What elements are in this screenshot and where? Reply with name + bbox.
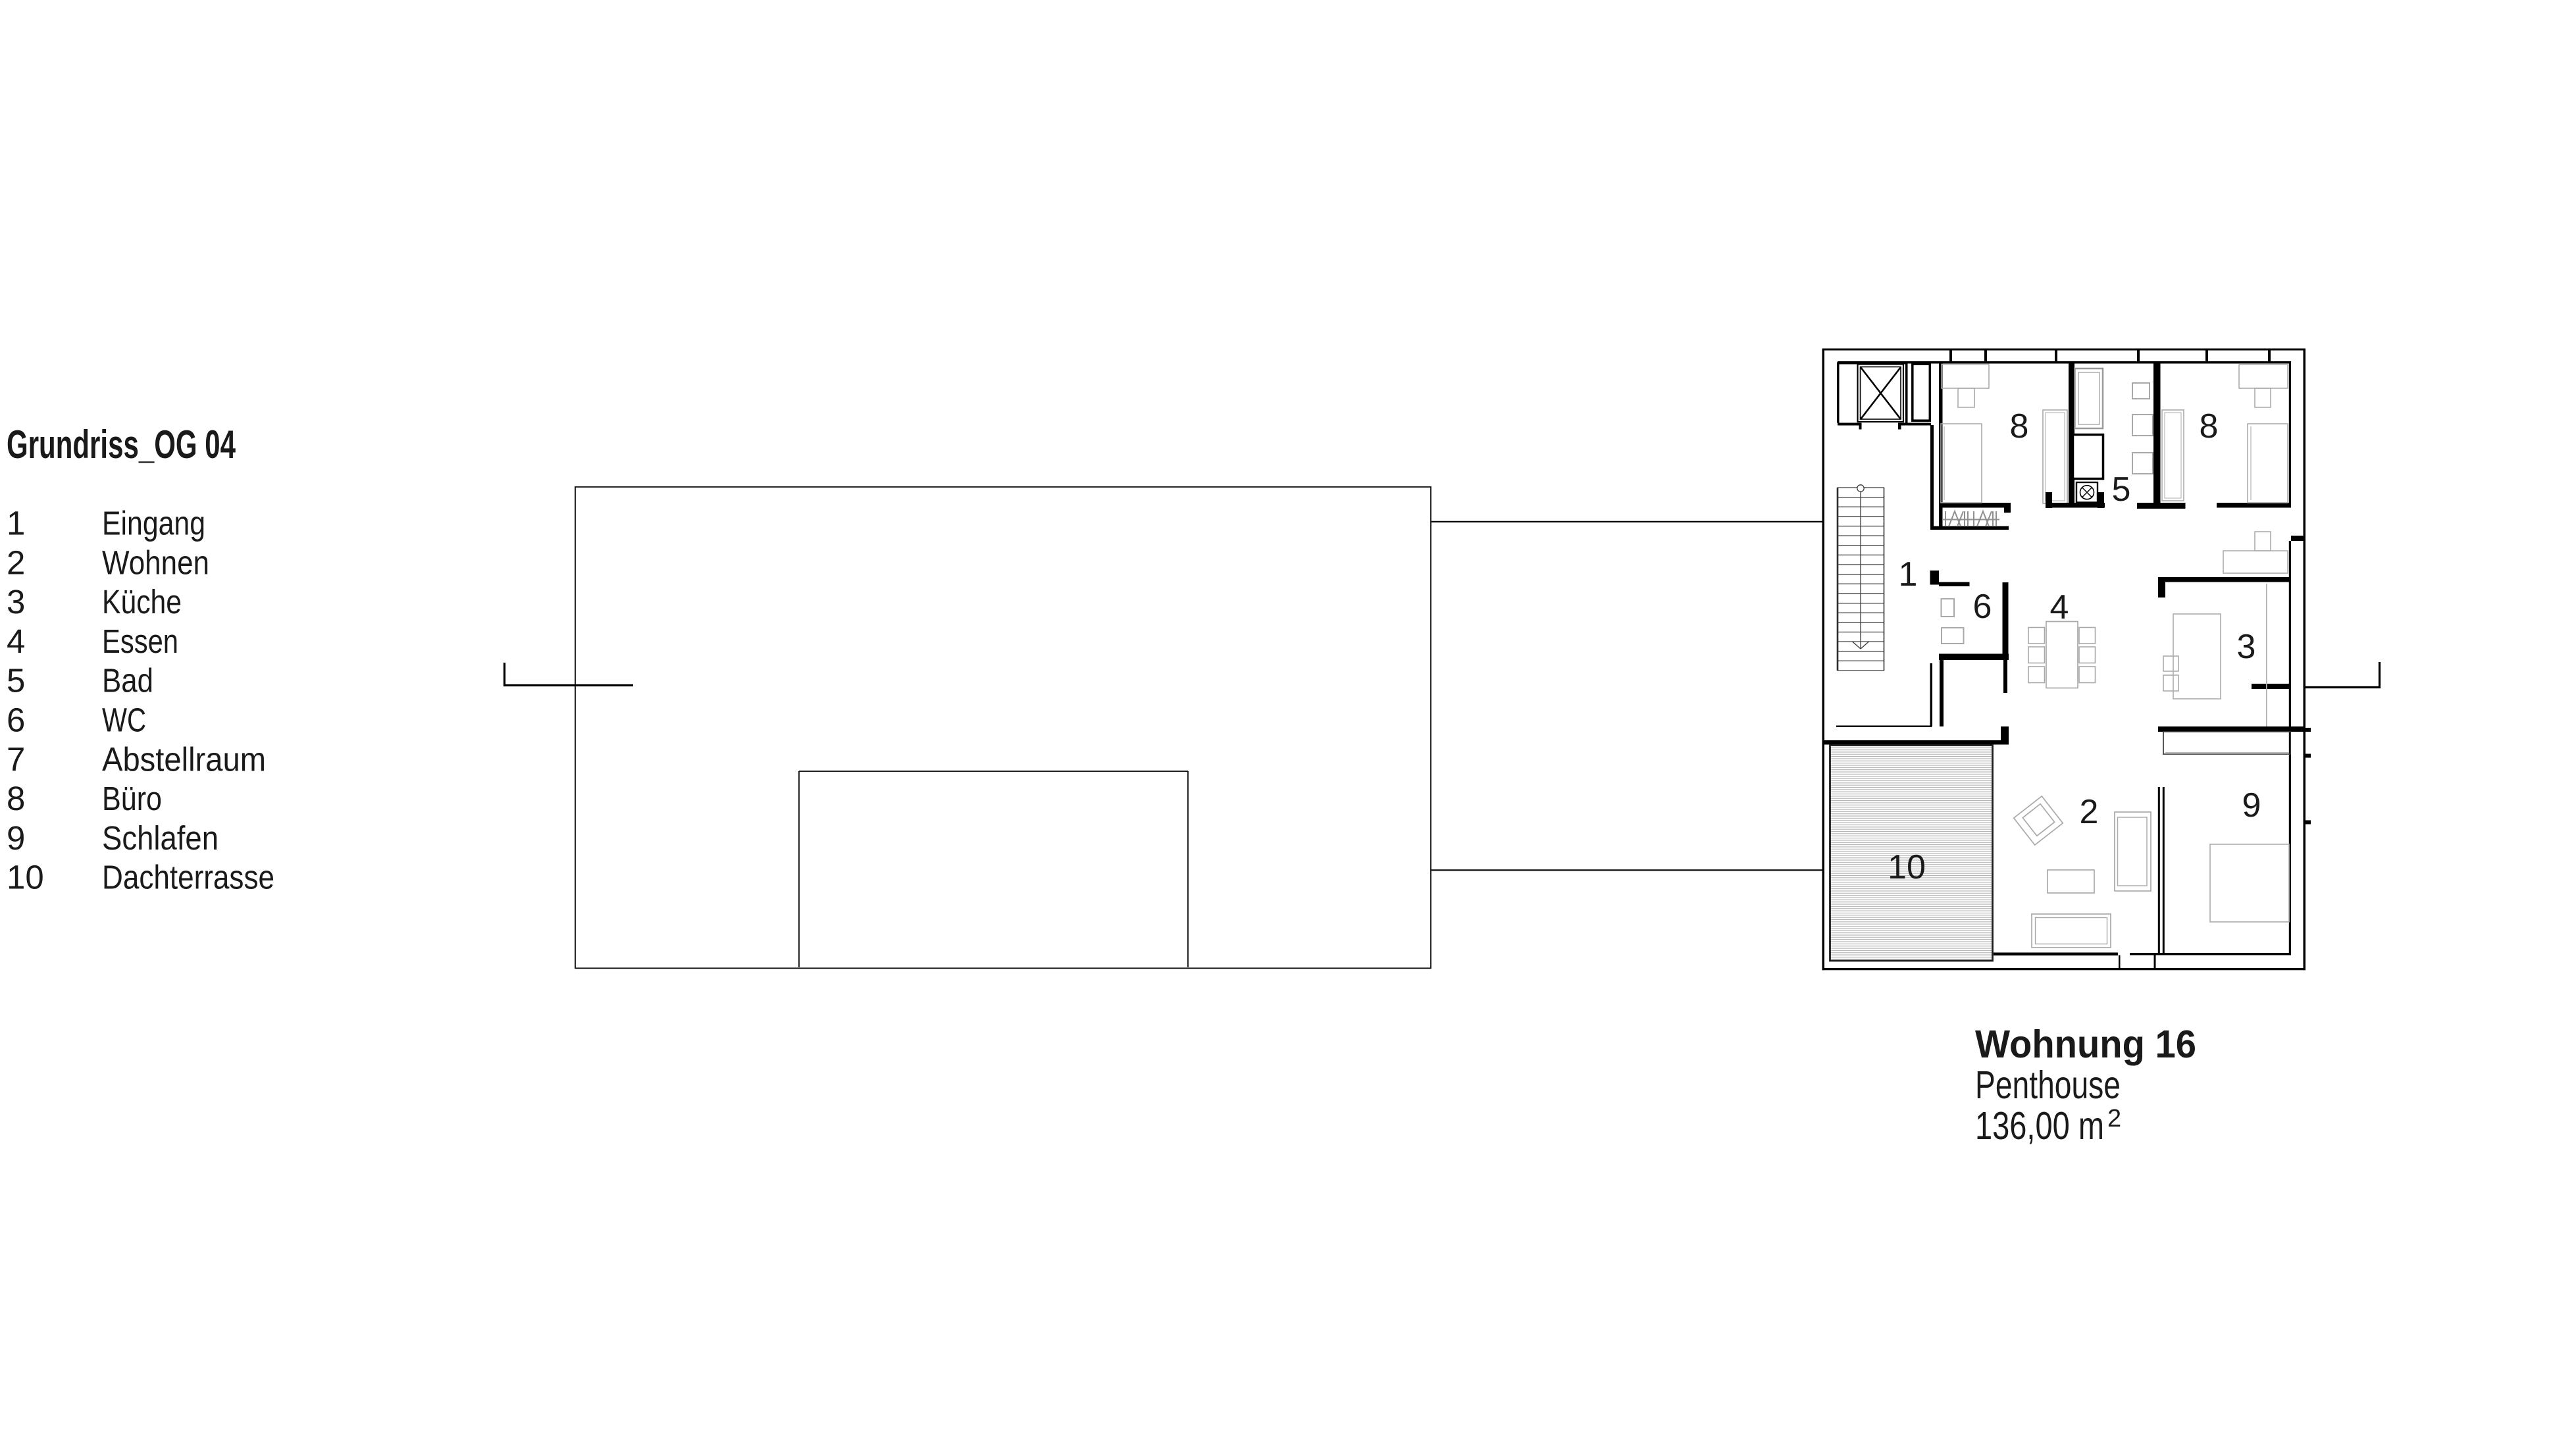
svg-text:9: 9 xyxy=(2242,786,2261,825)
svg-text:Wohnung 16: Wohnung 16 xyxy=(1975,1023,2196,1066)
svg-text:10: 10 xyxy=(1888,848,1926,886)
svg-text:2: 2 xyxy=(2107,1105,2121,1132)
svg-text:5: 5 xyxy=(2112,470,2131,509)
svg-text:8: 8 xyxy=(2010,407,2029,445)
svg-text:6: 6 xyxy=(1973,588,1992,626)
svg-text:1: 1 xyxy=(1899,555,1918,594)
svg-text:10: 10 xyxy=(7,859,44,896)
svg-text:7: 7 xyxy=(7,740,25,778)
svg-text:8: 8 xyxy=(2200,407,2219,445)
svg-text:4: 4 xyxy=(7,623,25,660)
svg-text:Dachterrasse: Dachterrasse xyxy=(102,859,274,896)
svg-text:3: 3 xyxy=(7,583,25,621)
svg-text:Küche: Küche xyxy=(102,583,182,621)
svg-text:Essen: Essen xyxy=(102,623,178,660)
svg-text:2: 2 xyxy=(7,544,25,581)
svg-text:WC: WC xyxy=(102,701,146,739)
svg-text:Penthouse: Penthouse xyxy=(1975,1063,2121,1107)
svg-text:Eingang: Eingang xyxy=(102,505,205,542)
svg-text:Bad: Bad xyxy=(102,662,153,699)
svg-text:2: 2 xyxy=(2080,793,2099,831)
svg-text:Abstellraum: Abstellraum xyxy=(102,740,266,778)
svg-text:Wohnen: Wohnen xyxy=(102,544,209,581)
svg-text:Büro: Büro xyxy=(102,780,162,817)
svg-text:Schlafen: Schlafen xyxy=(102,819,219,857)
svg-text:4: 4 xyxy=(2050,588,2069,626)
svg-text:8: 8 xyxy=(7,780,25,817)
svg-text:9: 9 xyxy=(7,819,25,857)
svg-text:6: 6 xyxy=(7,701,25,739)
svg-text:1: 1 xyxy=(7,505,25,542)
svg-text:3: 3 xyxy=(2237,628,2256,666)
svg-text:Grundriss_OG 04: Grundriss_OG 04 xyxy=(7,422,236,467)
svg-text:5: 5 xyxy=(7,662,25,699)
svg-text:136,00 m: 136,00 m xyxy=(1975,1104,2104,1148)
